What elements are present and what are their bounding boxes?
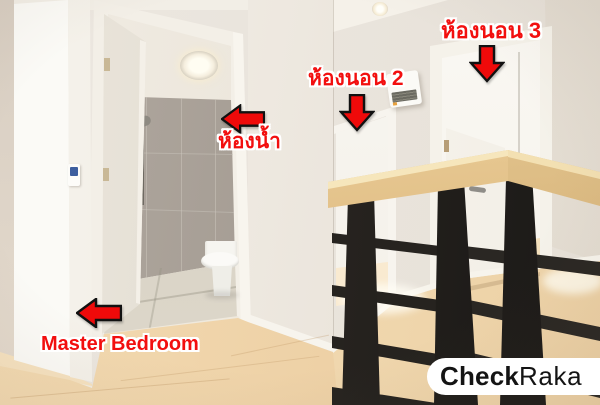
watermark-bold-text: Check xyxy=(440,361,519,392)
bedroom2-down-arrow-icon xyxy=(339,94,375,132)
bathroom-label: ห้องน้ำ xyxy=(218,131,281,153)
bedroom3-label: ห้องนอน 3 xyxy=(441,19,541,42)
bedroom2-label: ห้องนอน 2 xyxy=(308,68,404,90)
checkraka-watermark: CheckRaka xyxy=(427,358,600,395)
bedroom3-down-arrow-icon xyxy=(469,45,505,83)
watermark-light-text: Raka xyxy=(519,361,582,392)
master-bedroom-label: Master Bedroom xyxy=(41,334,199,355)
master-bedroom-left-arrow-icon xyxy=(76,298,122,328)
interior-photo: ห้องนอน 3 ห้องนอน 2 ห้องน้ำ Master Bedro… xyxy=(0,0,600,405)
